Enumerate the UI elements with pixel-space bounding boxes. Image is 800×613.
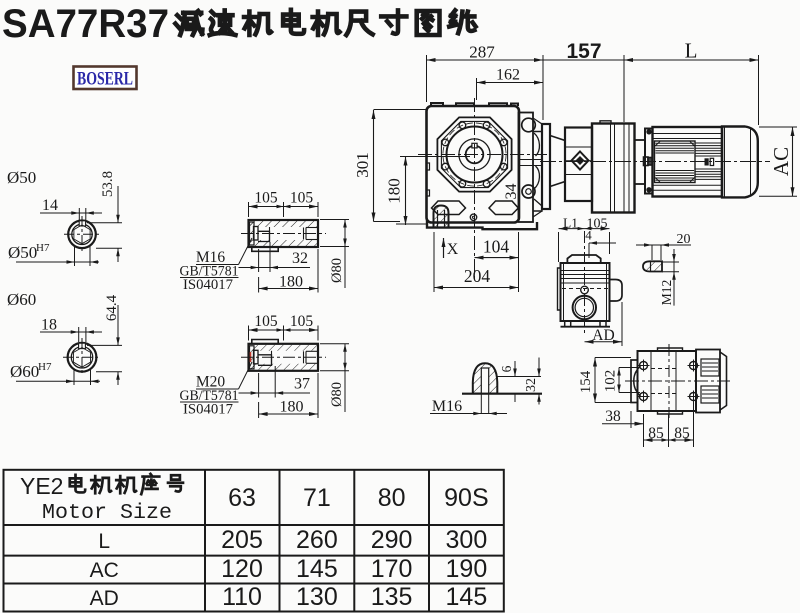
- svg-text:L: L: [685, 39, 698, 63]
- svg-text:301: 301: [353, 152, 372, 178]
- svg-text:H7: H7: [38, 361, 52, 373]
- svg-text:37: 37: [294, 376, 310, 393]
- svg-text:180: 180: [280, 399, 304, 416]
- svg-text:290: 290: [371, 526, 413, 554]
- svg-text:145: 145: [446, 583, 488, 611]
- svg-text:Ø50: Ø50: [7, 168, 36, 187]
- svg-text:SA77R37: SA77R37: [2, 2, 169, 46]
- svg-text:AC: AC: [90, 559, 119, 582]
- svg-text:110: 110: [222, 583, 262, 611]
- svg-text:85: 85: [674, 425, 690, 442]
- svg-text:L1: L1: [563, 216, 578, 231]
- svg-text:32: 32: [524, 378, 539, 392]
- svg-text:157: 157: [566, 40, 601, 63]
- svg-text:53.8: 53.8: [100, 171, 116, 197]
- svg-text:90S: 90S: [444, 484, 488, 512]
- svg-text:IS04017: IS04017: [183, 277, 233, 293]
- svg-text:170: 170: [371, 555, 413, 583]
- svg-text:71: 71: [303, 484, 331, 512]
- svg-text:105: 105: [254, 190, 278, 207]
- svg-text:145: 145: [296, 555, 338, 583]
- svg-text:180: 180: [385, 178, 404, 204]
- svg-text:Ø50: Ø50: [8, 243, 37, 262]
- svg-text:105: 105: [290, 190, 314, 207]
- svg-text:6: 6: [499, 365, 514, 372]
- svg-text:190: 190: [446, 555, 488, 583]
- svg-text:135: 135: [371, 583, 413, 611]
- svg-text:18: 18: [41, 317, 57, 334]
- svg-text:AC: AC: [769, 147, 793, 176]
- svg-text:L: L: [98, 530, 110, 553]
- svg-text:287: 287: [469, 43, 495, 62]
- svg-text:32: 32: [292, 250, 308, 267]
- svg-text:14: 14: [42, 197, 58, 214]
- svg-text:H7: H7: [36, 242, 50, 254]
- svg-text:162: 162: [496, 67, 520, 84]
- svg-text:120: 120: [221, 555, 263, 583]
- svg-text:64.4: 64.4: [104, 294, 120, 321]
- svg-text:4: 4: [585, 228, 592, 243]
- svg-text:180: 180: [279, 274, 303, 291]
- svg-text:AD: AD: [592, 327, 614, 344]
- svg-text:YE2: YE2: [20, 473, 63, 499]
- svg-text:105: 105: [254, 313, 278, 330]
- svg-text:80: 80: [378, 484, 406, 512]
- svg-text:M16: M16: [432, 398, 462, 415]
- svg-text:204: 204: [464, 266, 491, 286]
- svg-text:Ø60: Ø60: [10, 362, 39, 381]
- svg-text:AD: AD: [90, 587, 119, 610]
- svg-text:34: 34: [503, 184, 520, 200]
- svg-text:Ø60: Ø60: [7, 290, 36, 309]
- svg-text:260: 260: [296, 526, 338, 554]
- svg-text:IS04017: IS04017: [183, 402, 233, 418]
- svg-text:X: X: [447, 241, 459, 258]
- svg-text:20: 20: [677, 232, 691, 247]
- svg-text:205: 205: [221, 526, 263, 554]
- svg-text:Motor Size: Motor Size: [42, 502, 172, 525]
- svg-text:154: 154: [578, 370, 594, 393]
- svg-text:38: 38: [605, 408, 621, 425]
- svg-text:63: 63: [228, 484, 256, 512]
- svg-text:105: 105: [290, 313, 314, 330]
- svg-text:102: 102: [603, 370, 619, 393]
- svg-text:Ø80: Ø80: [329, 382, 345, 407]
- svg-text:130: 130: [296, 583, 338, 611]
- svg-text:300: 300: [446, 526, 488, 554]
- svg-text:M12: M12: [659, 280, 674, 306]
- svg-text:BOSERL: BOSERL: [77, 70, 133, 90]
- svg-text:85: 85: [648, 425, 664, 442]
- svg-text:104: 104: [483, 237, 510, 257]
- svg-text:Ø80: Ø80: [329, 258, 345, 283]
